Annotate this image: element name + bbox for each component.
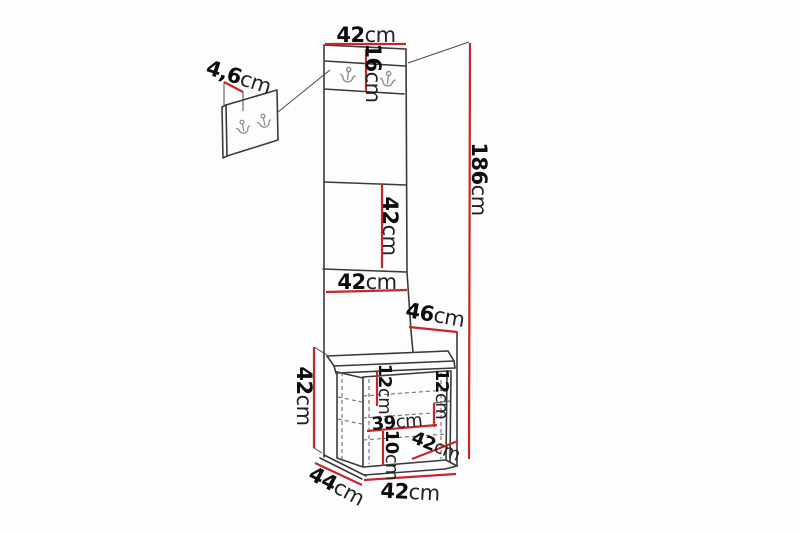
- dim-bench-depth-label: 44cm: [305, 462, 369, 511]
- dim-inner-left-label: 12cm: [374, 364, 395, 415]
- dim-plinth-height-label: 10cm: [381, 430, 402, 481]
- hook-icon: [256, 113, 272, 129]
- dim-bench-width-label: 42cm: [380, 478, 440, 505]
- detail-pointer-line: [278, 70, 330, 112]
- dim-inner-right-label: 12cm: [431, 369, 452, 420]
- dim-panel-thickness-label: 4,6cm: [203, 55, 274, 98]
- dim-seat-depth-label: 42cm: [408, 427, 463, 465]
- dimension-labels: 42cm 16cm 4,6cm 186cm 42cm 42cm 46cm 42c…: [203, 23, 491, 511]
- hook-icon: [235, 119, 251, 135]
- dimension-line-total-height: [469, 43, 470, 459]
- dim-lower-panel-width-label: 42cm: [337, 270, 396, 294]
- dim-middle-panel-height-label: 42cm: [378, 196, 402, 255]
- dim-bench-height-label: 42cm: [292, 366, 316, 425]
- dim-total-height-label: 186cm: [467, 142, 491, 215]
- diagram-canvas: 42cm 16cm 4,6cm 186cm 42cm 42cm 46cm 42c…: [0, 0, 800, 533]
- furniture-dimension-diagram: 42cm 16cm 4,6cm 186cm 42cm 42cm 46cm 42c…: [0, 0, 800, 533]
- height-extension-line: [408, 42, 469, 63]
- dim-hook-rail-height-label: 16cm: [361, 43, 385, 102]
- hook-icon: [340, 67, 356, 83]
